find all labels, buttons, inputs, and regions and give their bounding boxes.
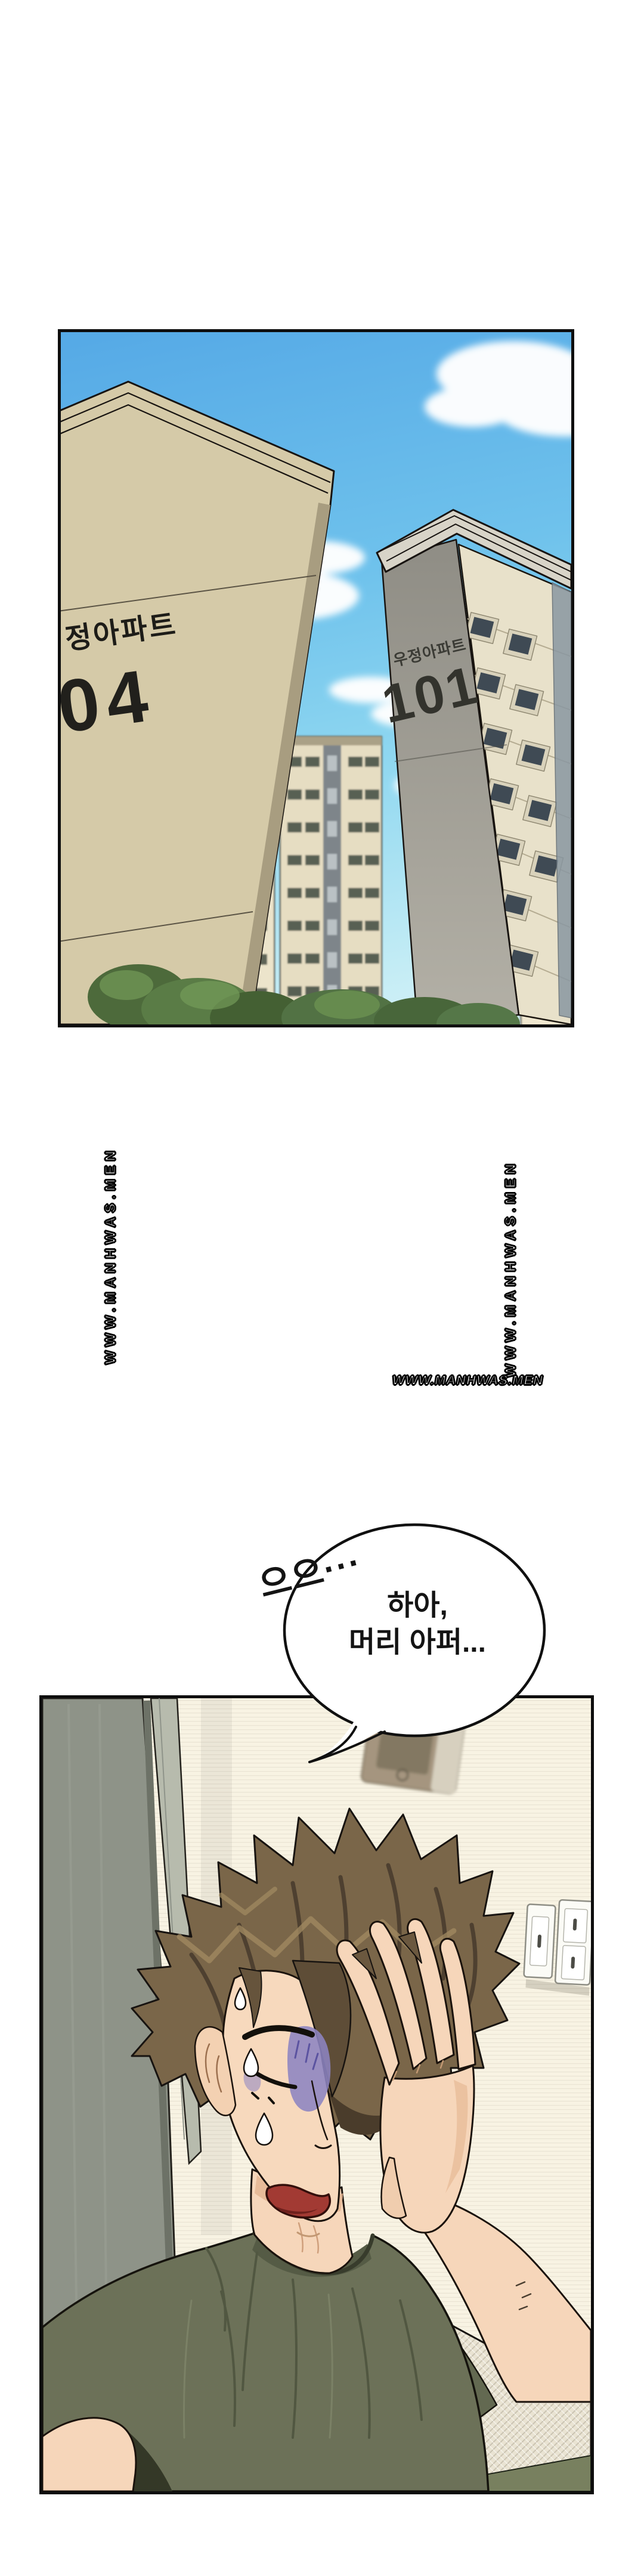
building-left-number: 04 — [61, 654, 160, 749]
city-panel: 102 — [58, 329, 574, 1027]
bubble-line-1: 하아, — [310, 1587, 525, 1624]
room-panel — [39, 1695, 594, 2494]
watermark-left: WWW.MANHWAS.MEN — [103, 1147, 119, 1364]
watermark-horizontal: WWW.MANHWAS.MEN — [391, 1373, 545, 1388]
knee — [42, 2418, 136, 2491]
manhwa-page: 102 — [0, 0, 644, 2576]
room-illustration — [42, 1698, 591, 2491]
bubble-line-2: 머리 아퍼... — [310, 1624, 525, 1661]
building-right: 우정아파트 101 — [377, 510, 571, 1024]
watermark-right: WWW.MANHWAS.MEN — [503, 1160, 519, 1377]
bruise — [287, 2026, 330, 2111]
city-illustration: 102 — [61, 332, 571, 1024]
speech-bubble-text: 하아, 머리 아퍼... — [310, 1587, 525, 1661]
